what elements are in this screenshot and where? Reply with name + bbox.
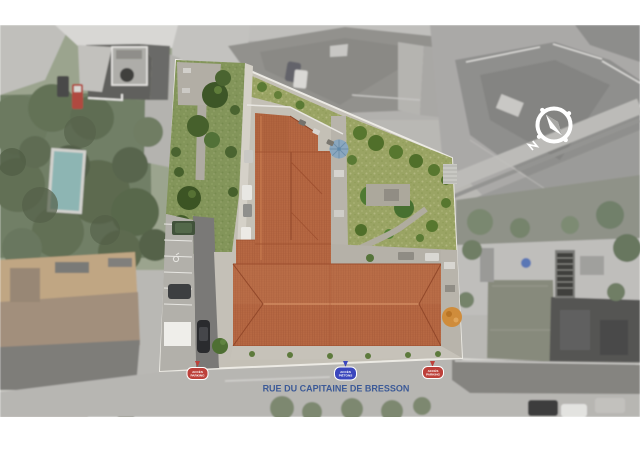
svg-text:RUE DU CAPITAINE DE BRESSON: RUE DU CAPITAINE DE BRESSON bbox=[263, 384, 410, 394]
svg-text:PIÉTONS: PIÉTONS bbox=[339, 373, 353, 378]
svg-text:PARKING: PARKING bbox=[190, 374, 205, 378]
svg-text:PARKING: PARKING bbox=[426, 373, 441, 377]
